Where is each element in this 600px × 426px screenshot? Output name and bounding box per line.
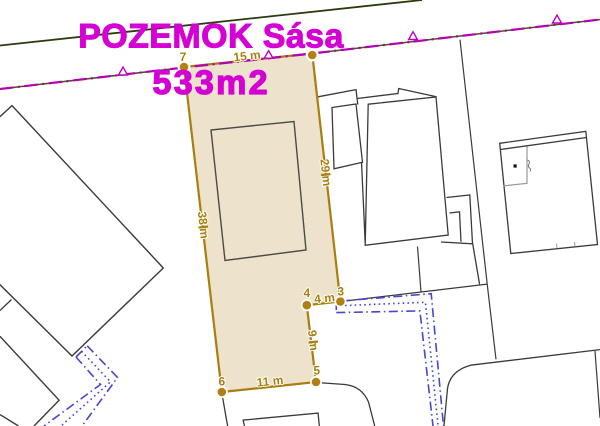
svg-text:5: 5 [313, 364, 320, 378]
svg-text:POZEMOK Sása: POZEMOK Sása [78, 17, 344, 55]
svg-text:4: 4 [303, 286, 310, 300]
svg-text:9 m: 9 m [305, 329, 321, 351]
svg-text:3: 3 [337, 285, 344, 299]
svg-text:38 m: 38 m [195, 211, 212, 240]
svg-text:11 m: 11 m [256, 373, 284, 390]
svg-text:29 m: 29 m [317, 158, 334, 187]
svg-text:533m2: 533m2 [153, 64, 270, 102]
svg-text:4 m: 4 m [314, 290, 336, 306]
svg-text:6: 6 [218, 374, 225, 388]
